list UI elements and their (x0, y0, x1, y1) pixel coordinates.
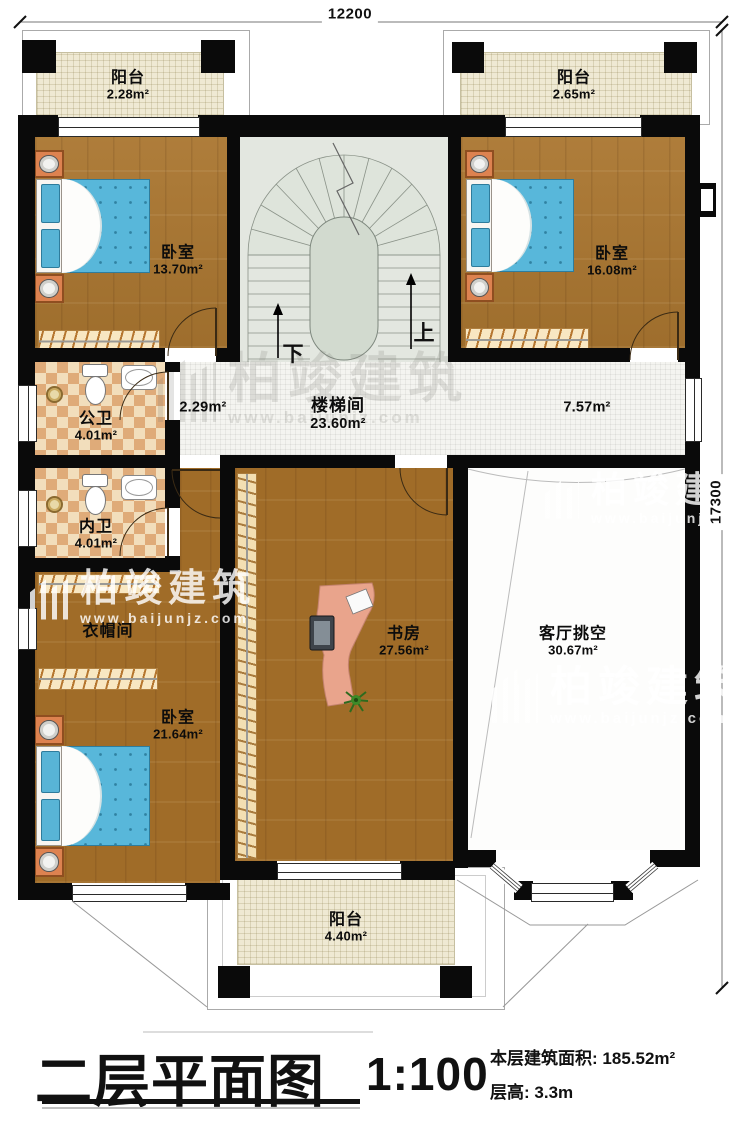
wall-segment (18, 648, 35, 900)
window (72, 885, 187, 902)
stair-down-label: 下 (283, 338, 304, 368)
room-living-void-floor (468, 468, 685, 850)
wall-segment (18, 440, 35, 490)
wall-segment (35, 455, 180, 468)
bay-window-pier (611, 881, 633, 900)
column (664, 42, 697, 73)
toilet-bowl (85, 486, 106, 515)
dimension-width-label: 12200 (322, 6, 378, 23)
window (18, 385, 37, 442)
floor-area-value: 185.52m² (602, 1049, 675, 1068)
wall-segment (35, 558, 180, 572)
room-label-bedroom-tl: 卧室 13.70m² (153, 244, 203, 277)
floor-height-row: 层高: 3.3m (490, 1078, 573, 1103)
wall-segment (227, 137, 240, 362)
sliding-door (58, 117, 200, 137)
wall-segment (685, 115, 700, 378)
toilet-bowl (85, 376, 106, 405)
wall-segment (216, 348, 240, 362)
wall-segment (185, 883, 230, 900)
plan-title: 二层平面图 (35, 1036, 325, 1118)
bed (36, 179, 150, 273)
floor-area-label: 本层建筑面积: (490, 1049, 598, 1068)
room-label-bath-public: 公卫 4.01m² (75, 410, 117, 443)
wall-segment (220, 455, 235, 880)
floor-area-row: 本层建筑面积: 185.52m² (490, 1044, 675, 1069)
floor-height-value: 3.3m (534, 1083, 573, 1102)
window (685, 378, 702, 442)
bed (466, 179, 574, 272)
wall-segment (18, 883, 72, 900)
window (18, 608, 37, 650)
wall-segment (447, 455, 685, 468)
floor-drain (46, 386, 63, 403)
plan-scale: 1:100 (366, 1047, 489, 1101)
wall-segment (678, 348, 700, 362)
room-label-balcony-tl: 阳台 2.28m² (107, 69, 149, 102)
sliding-door (277, 863, 402, 880)
room-label-bedroom-bl: 卧室 21.64m² (153, 709, 203, 742)
title-underline-thick (42, 1099, 360, 1104)
bed-headboard (36, 179, 62, 273)
room-study-floor (235, 468, 453, 861)
wall-segment (220, 455, 395, 468)
column (201, 40, 235, 73)
wall-segment (18, 348, 165, 362)
title-underline-thin (42, 1107, 360, 1109)
wall-segment (685, 440, 700, 850)
bookshelf (237, 473, 257, 859)
dimension-height-label: 17300 (708, 474, 725, 530)
area-label-hall-left: 2.29m² (179, 400, 226, 417)
wall-segment (18, 115, 35, 385)
floor-height-label: 层高: (490, 1083, 530, 1102)
cloakroom-rack (38, 574, 160, 594)
bed-headboard (36, 746, 62, 846)
private-corridor-floor (180, 468, 220, 572)
room-label-bedroom-tr: 卧室 16.08m² (587, 245, 637, 278)
wall-segment (448, 348, 630, 362)
room-label-study: 书房 27.56m² (379, 625, 429, 658)
bed-headboard (466, 179, 492, 272)
room-label-stairwell: 楼梯间 23.60m² (310, 396, 365, 432)
flue-box-inner (701, 189, 713, 211)
stair-up-label: 上 (414, 317, 435, 347)
column (22, 40, 56, 73)
room-label-cloakroom: 衣帽间 (82, 623, 133, 641)
wall-segment (18, 545, 35, 608)
room-label-balcony-bottom: 阳台 4.40m² (325, 911, 367, 944)
bed (36, 746, 150, 846)
column (452, 42, 484, 73)
nightstand (34, 847, 64, 877)
room-label-living-void: 客厅挑空 30.67m² (539, 625, 607, 658)
area-label-hall-right: 7.57m² (563, 400, 610, 417)
cloakroom-rack (38, 668, 158, 690)
nightstand (465, 150, 494, 178)
column (440, 966, 472, 998)
sink (121, 475, 157, 500)
nightstand (34, 274, 64, 303)
nightstand (465, 273, 494, 302)
window (18, 490, 37, 547)
floor-plan-page: 柏竣建筑 www.baijunjz.com (0, 0, 750, 1123)
column (218, 966, 250, 998)
wall-segment (453, 850, 496, 867)
wall-segment (165, 362, 180, 372)
floor-drain (46, 496, 63, 513)
nightstand (34, 715, 64, 745)
wall-segment (220, 861, 277, 880)
room-label-balcony-tr: 阳台 2.65m² (553, 69, 595, 102)
wall-segment (448, 137, 461, 362)
nightstand (34, 150, 64, 178)
bay-window-center (531, 883, 614, 902)
wall-segment (650, 850, 700, 867)
sliding-door (505, 117, 642, 137)
wall-segment (198, 115, 505, 137)
room-label-bath-private: 内卫 4.01m² (75, 518, 117, 551)
wall-segment (453, 468, 468, 868)
stair-newel-island (310, 217, 378, 360)
wall-segment (400, 861, 455, 880)
sink (121, 365, 157, 390)
